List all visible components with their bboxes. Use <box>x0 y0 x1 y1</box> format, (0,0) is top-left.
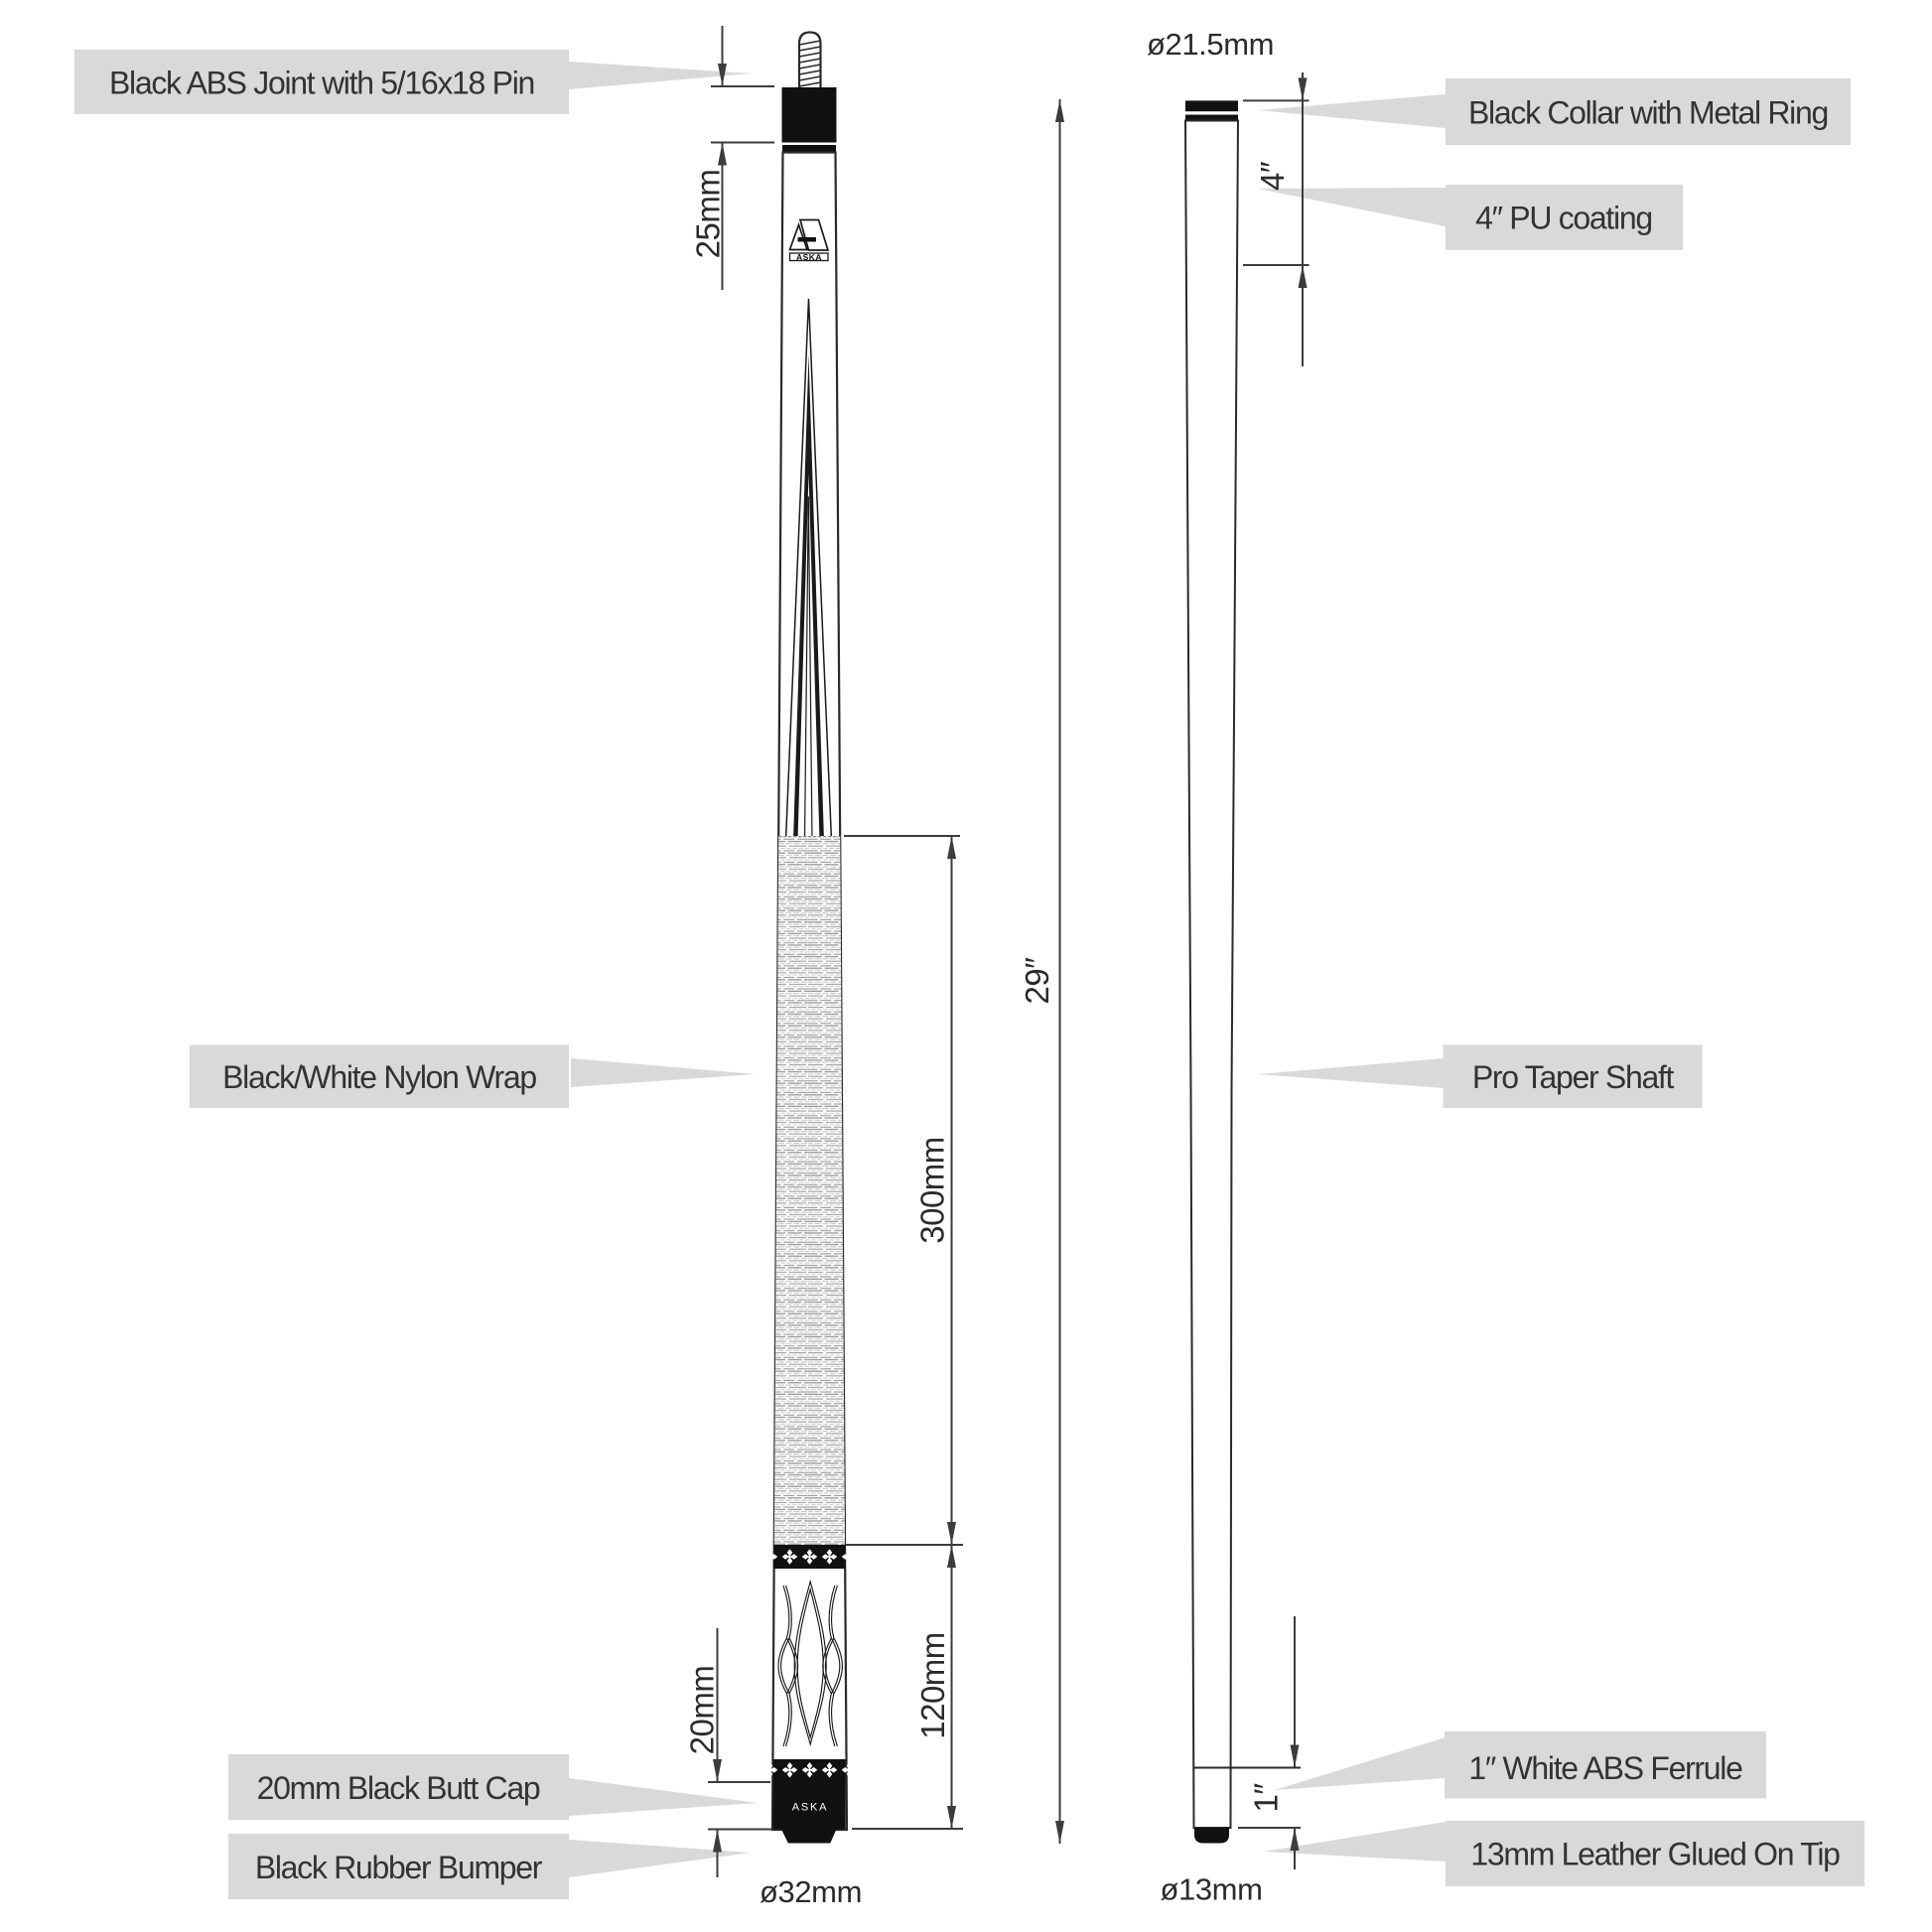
svg-text:Black Collar with Metal Ring: Black Collar with Metal Ring <box>1468 95 1828 131</box>
svg-text:120mm: 120mm <box>914 1632 951 1739</box>
svg-text:1″ White ABS Ferrule: 1″ White ABS Ferrule <box>1468 1750 1742 1786</box>
svg-text:1″: 1″ <box>1248 1783 1285 1813</box>
svg-text:Black ABS Joint with 5/16x18 P: Black ABS Joint with 5/16x18 Pin <box>109 66 534 101</box>
svg-text:Black/White Nylon Wrap: Black/White Nylon Wrap <box>222 1059 536 1095</box>
svg-text:4″: 4″ <box>1254 161 1291 191</box>
svg-text:29″: 29″ <box>1019 957 1055 1005</box>
svg-text:Black Rubber Bumper: Black Rubber Bumper <box>255 1850 543 1885</box>
svg-text:20mm: 20mm <box>684 1666 721 1755</box>
svg-text:20mm Black Butt Cap: 20mm Black Butt Cap <box>257 1770 540 1806</box>
svg-text:ASKA: ASKA <box>792 1802 829 1814</box>
svg-text:ASKA: ASKA <box>796 252 822 262</box>
svg-text:ø13mm: ø13mm <box>1160 1872 1262 1907</box>
svg-text:13mm Leather Glued On Tip: 13mm Leather Glued On Tip <box>1470 1837 1840 1872</box>
svg-text:Pro Taper Shaft: Pro Taper Shaft <box>1472 1059 1675 1095</box>
svg-text:300mm: 300mm <box>914 1137 951 1244</box>
svg-text:25mm: 25mm <box>690 170 727 259</box>
svg-text:ø32mm: ø32mm <box>759 1874 862 1909</box>
svg-text:ø21.5mm: ø21.5mm <box>1147 27 1274 62</box>
svg-text:4″ PU coating: 4″ PU coating <box>1475 201 1652 236</box>
